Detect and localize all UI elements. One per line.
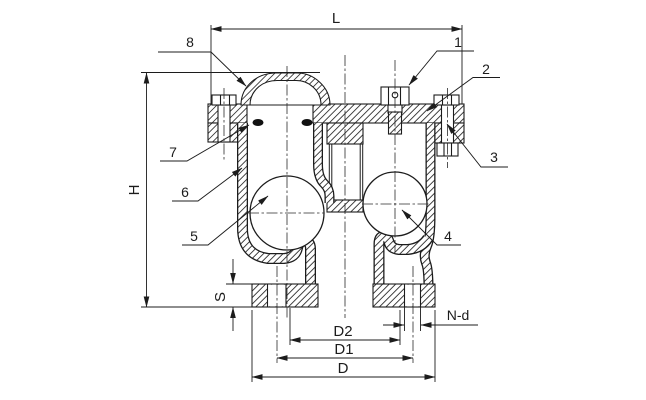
dim-label-D1: D1 (334, 341, 353, 358)
valve-engineering-drawing: L H S D2 D1 D N-d 8 1 2 3 4 5 6 7 (0, 0, 646, 400)
dim-label-L: L (332, 10, 340, 27)
part-callout-6: 6 (181, 184, 189, 200)
right-chamber-floor (379, 237, 428, 290)
drawing-canvas: L H S D2 D1 D N-d 8 1 2 3 4 5 6 7 (0, 0, 646, 400)
valve-body-section (208, 73, 464, 307)
seal-left (253, 119, 264, 126)
part-callout-7: 7 (169, 144, 177, 160)
dim-label-H: H (126, 185, 143, 196)
leader-part-8 (158, 52, 246, 86)
dim-label-D2: D2 (333, 323, 352, 340)
part-callout-5: 5 (190, 228, 198, 244)
dim-label-D: D (338, 360, 349, 377)
part-callout-8: 8 (186, 34, 194, 50)
part-callout-2: 2 (482, 61, 490, 77)
flange-bolt-hole-right (405, 285, 421, 307)
part-callout-3: 3 (490, 149, 498, 165)
dim-label-Nd: N-d (447, 307, 470, 323)
seat-seals (253, 119, 313, 126)
leader-part-1 (409, 51, 474, 85)
part-callout-4: 4 (444, 228, 452, 244)
dim-label-S: S (212, 292, 229, 302)
seal-right (302, 119, 313, 126)
part-callout-1: 1 (454, 34, 462, 50)
